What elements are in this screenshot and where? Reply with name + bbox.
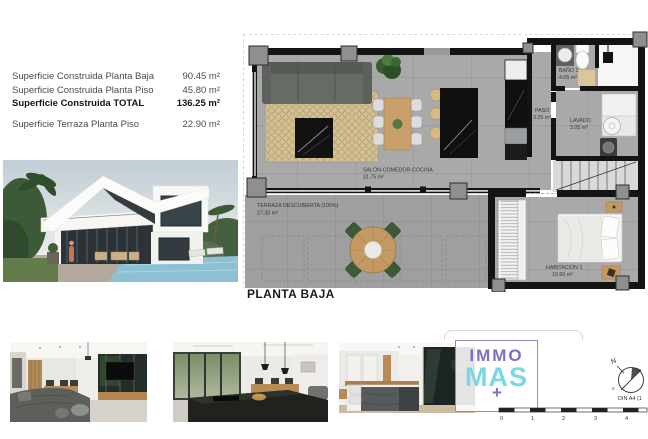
north-label: N [610, 357, 619, 366]
room-area-lavado: 3.05 m² [570, 125, 588, 131]
compass-origin-label: 0 [612, 386, 615, 391]
agency-logo: IMMO MAS + [455, 340, 538, 412]
summary-label: Superficie Construida Planta Piso [12, 84, 154, 98]
summary-label: Superficie Construida Planta Baja [12, 70, 154, 84]
summary-row: Superficie Construida Planta Piso 45.80 … [12, 84, 220, 98]
room-area-habitacion: 10.60 m² [552, 272, 573, 278]
terrace-dining-set [345, 222, 401, 278]
room-label-habitacion: HABITACIÓN 1 [546, 264, 582, 271]
stamp-outline [444, 330, 583, 340]
summary-row: Superficie Construida Planta Baja 90.45 … [12, 70, 220, 84]
summary-value: 90.45 m² [183, 70, 221, 84]
dining-set [373, 98, 422, 150]
scale-bar-segments [499, 408, 647, 412]
scale-tick: 1 [531, 416, 534, 422]
room-area-paso: 3.25 m² [533, 115, 551, 121]
floorplan: SALÓN-COMEDOR-COCINA 31.75 m² TERRAZA DE… [240, 30, 648, 292]
room-label-terraza: TERRAZA DESCUBIERTA (100%) [257, 203, 339, 209]
coffee-table [295, 118, 333, 158]
summary-label: Superficie Terraza Planta Piso [12, 118, 139, 132]
wardrobe [498, 200, 526, 280]
room-label-lavado: LAVADO [570, 118, 591, 124]
room-label-bano: BAÑO 1 [559, 67, 578, 74]
scale-tick: 2 [562, 416, 565, 422]
room-area-bano: 4.05 m² [559, 75, 577, 81]
summary-label: Superficie Construida TOTAL [12, 97, 144, 111]
entry-floor [598, 42, 638, 88]
scale-tick: 4 [625, 416, 628, 422]
villa-exterior-render [3, 160, 238, 282]
room-label-paso: PASO [535, 108, 549, 114]
summary-row-total: Superficie Construida TOTAL 136.25 m² [12, 97, 220, 111]
scale-bar: 0 1 2 3 4 [498, 406, 648, 424]
compass-rose-icon: N 0 [608, 352, 648, 398]
flyer-page: Superficie Construida Planta Baja 90.45 … [0, 0, 648, 439]
area-summary: Superficie Construida Planta Baja 90.45 … [12, 70, 220, 131]
room-label-salon: SALÓN-COMEDOR-COCINA [363, 167, 433, 174]
interior-photo-kitchen [173, 342, 328, 422]
sofa [262, 62, 372, 104]
summary-value: 45.80 m² [183, 84, 221, 98]
interior-photo-living [10, 342, 147, 422]
scale-tick: 0 [500, 416, 503, 422]
logo-plus-icon: + [492, 383, 502, 403]
summary-value: 22.90 m² [183, 118, 221, 132]
lintel [424, 48, 450, 55]
room-area-terraza: 27.30 m² [257, 211, 278, 217]
din-format-label: DIN A4 (1 [618, 396, 642, 402]
scale-tick: 3 [594, 416, 597, 422]
summary-value: 136.25 m² [177, 97, 220, 111]
summary-row: Superficie Terraza Planta Piso 22.90 m² [12, 118, 220, 132]
kitchen-tall-unit [505, 60, 527, 160]
plan-title: PLANTA BAJA [247, 287, 335, 301]
room-area-salon: 31.75 m² [363, 175, 384, 181]
